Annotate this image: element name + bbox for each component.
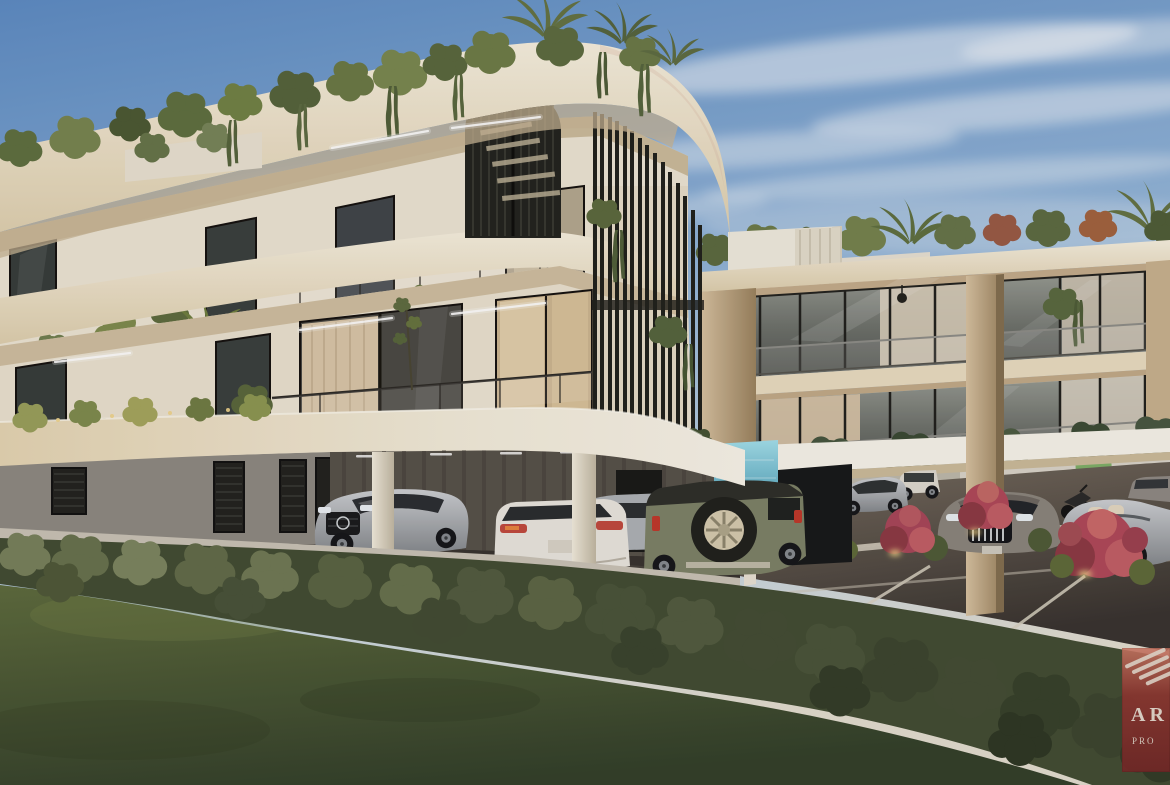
vignette — [0, 0, 1170, 785]
scene — [0, 0, 1170, 785]
wing-stripes-icon — [1122, 648, 1170, 690]
watermark-text-line1: AR — [1131, 704, 1168, 727]
watermark-logo: AR PRO — [1122, 648, 1170, 772]
watermark-text-line2: PRO — [1132, 736, 1156, 746]
rendering-image: AR PRO — [0, 0, 1170, 785]
